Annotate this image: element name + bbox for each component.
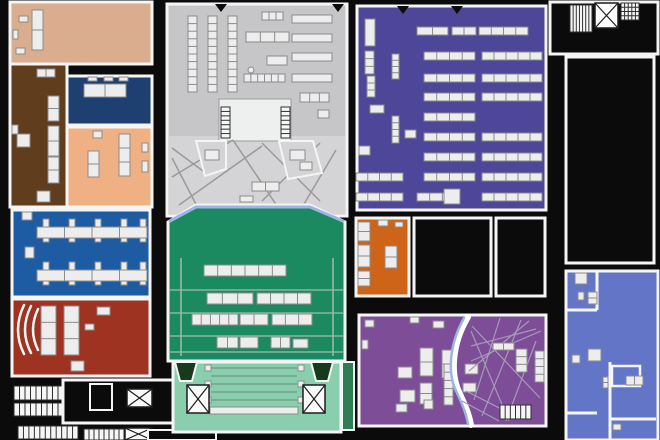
green-table-row-2b — [257, 293, 311, 304]
platform-right-table — [290, 150, 305, 160]
studio-item-2 — [362, 340, 368, 349]
tan-shelf — [32, 10, 43, 50]
purple-strip-2 — [392, 116, 399, 143]
brown-item-2 — [37, 191, 50, 202]
gray-table-row-1 — [292, 15, 332, 23]
purple-row-8a — [356, 193, 403, 201]
purple-row-1b — [482, 52, 542, 60]
red-item-2 — [85, 324, 94, 330]
gray-table-col-2 — [208, 16, 217, 92]
stage-cart-2 — [240, 196, 253, 202]
peach-shelf-2 — [119, 134, 130, 176]
elevator-left — [127, 389, 152, 407]
purple-shelf-2 — [365, 51, 374, 74]
brown-item-1 — [12, 125, 18, 134]
room-dark-b — [496, 218, 545, 296]
stage-lift-left — [187, 385, 209, 413]
stage-cart-1 — [252, 182, 279, 191]
orange-shelf-3 — [358, 271, 370, 286]
floor-plan-svg — [0, 0, 660, 440]
gray-table-row-4 — [292, 74, 332, 82]
room-dark-right — [566, 57, 654, 263]
pit-step-dot — [205, 365, 211, 371]
peach-item-3 — [142, 161, 148, 172]
stage-gallery-right — [281, 107, 290, 138]
purple-row-3b — [482, 93, 542, 101]
navy-tick-3 — [119, 77, 128, 81]
purple-row-0c — [479, 27, 528, 35]
purple-row-5a — [424, 133, 475, 141]
studio-table-1 — [420, 348, 433, 376]
studio-item-8 — [424, 400, 433, 409]
green-table-row-4b — [240, 337, 258, 348]
purple-row-8c — [482, 193, 542, 201]
pit-step-dot — [298, 365, 304, 371]
peach-shelf-1 — [88, 151, 99, 177]
studio-ramp — [500, 405, 531, 419]
purple-row-0a — [417, 27, 448, 35]
navy-tick-2 — [104, 77, 113, 81]
green-table-row-2a — [207, 293, 253, 304]
studio-item-1 — [365, 320, 374, 327]
purple-shelf-4 — [370, 105, 384, 113]
purple-row-1a — [424, 52, 475, 60]
green-table-row-4a — [217, 337, 238, 348]
gray-table-col-3 — [228, 16, 237, 92]
purple-row-3a — [424, 93, 475, 101]
suite-fixture-8 — [613, 424, 621, 430]
gray-dotted-row — [244, 74, 285, 82]
green-strip — [342, 362, 354, 430]
gray-table-row-2 — [292, 34, 332, 42]
gray-table-row-3 — [292, 53, 332, 61]
gray-dot — [248, 67, 254, 73]
stage-lift-right — [303, 385, 325, 413]
suite-fixture-2 — [575, 273, 587, 284]
tan-item-3 — [16, 48, 25, 54]
red-rows-2 — [64, 306, 79, 355]
red-item-1 — [97, 307, 110, 315]
stairwell-left-1 — [14, 386, 69, 400]
purple-row-2b — [482, 74, 542, 82]
purple-row-7a — [356, 173, 403, 181]
purple-shelf-1 — [365, 19, 375, 46]
brown-shelf-2 — [48, 126, 59, 156]
gray-bench-3 — [267, 56, 287, 65]
gray-bench-2 — [246, 32, 289, 42]
suite-fixture-1 — [626, 376, 643, 385]
purple-row-0b — [452, 27, 476, 35]
blue-item-1 — [22, 212, 32, 220]
studio-rack-3 — [535, 351, 544, 382]
suite-fixture-3 — [578, 292, 584, 300]
purple-row-6a — [424, 153, 475, 161]
red-rows-1 — [41, 306, 56, 355]
core-stairs — [570, 5, 592, 32]
studio-bench — [493, 343, 514, 350]
tan-item-2 — [13, 30, 18, 39]
red-item-3 — [71, 361, 84, 371]
platform-right-item — [300, 162, 312, 170]
corridor-branch — [90, 384, 112, 410]
stairwell-bottom-1 — [18, 426, 78, 439]
orange-shelf-2 — [358, 245, 370, 267]
core-grid — [621, 3, 639, 20]
orange-item-2 — [395, 222, 403, 227]
room-peach-lounge — [67, 127, 152, 207]
room-dark-a — [414, 218, 491, 296]
suite-fixture-4 — [588, 292, 597, 304]
orange-shelf-4 — [385, 246, 397, 268]
gray-table-col-1 — [188, 16, 197, 92]
suite-fixture-5 — [572, 355, 580, 363]
orange-shelf-1 — [358, 222, 370, 241]
green-table-row-3c — [272, 314, 312, 325]
stairwell-bottom-2 — [84, 429, 124, 440]
room-tan-lounge — [10, 2, 152, 64]
studio-item-5 — [396, 404, 407, 412]
platform-left-table — [205, 150, 219, 160]
room-navy-office — [67, 76, 152, 125]
brown-shelf-1 — [48, 96, 59, 121]
green-table-row-3b — [240, 314, 268, 325]
purple-strip-1 — [392, 54, 399, 79]
purple-row-5b — [482, 133, 542, 141]
blue-table-1 — [37, 227, 147, 238]
green-table-row-1 — [204, 265, 286, 276]
gray-bench-1 — [262, 12, 283, 20]
purple-row-6b — [482, 153, 542, 161]
brown-shelf-3 — [48, 157, 59, 183]
gray-bench-4 — [300, 93, 329, 102]
purple-row-2a — [424, 74, 475, 82]
green-table-row-3a — [192, 314, 238, 325]
purple-item-1 — [405, 130, 416, 138]
orange-item-1 — [378, 220, 388, 226]
floor-plan-canvas — [0, 0, 660, 440]
studio-item-4 — [400, 390, 415, 402]
brown-case — [17, 134, 30, 147]
green-table-row-4d — [293, 339, 308, 348]
blue-item-2 — [25, 247, 34, 258]
peach-item-2 — [142, 143, 148, 152]
peach-item-1 — [93, 131, 102, 138]
studio-item-3 — [398, 367, 412, 378]
tan-item-1 — [19, 16, 28, 22]
studio-item-6 — [433, 321, 444, 328]
brown-table — [37, 69, 55, 77]
stage-wedge-right — [311, 362, 333, 381]
suite-fixture-6 — [588, 349, 601, 361]
stairwell-left-2 — [14, 403, 69, 416]
purple-desk — [444, 189, 460, 204]
purple-shelf-3 — [367, 76, 375, 97]
stage-gallery-left — [221, 107, 230, 138]
gray-bench-5 — [318, 110, 329, 118]
core-elevator — [595, 3, 618, 28]
purple-item-2 — [359, 146, 370, 155]
blue-table-2 — [37, 270, 147, 281]
suite-fixture-7 — [603, 377, 608, 388]
stage-wedge-left — [175, 362, 197, 381]
navy-tick-1 — [88, 77, 97, 81]
studio-item-10 — [463, 383, 476, 392]
green-table-row-4c — [271, 337, 290, 348]
studio-rack-2 — [516, 349, 527, 372]
studio-item-7 — [410, 317, 419, 323]
purple-row-7b — [424, 173, 475, 181]
pit-front-bar — [210, 407, 298, 414]
purple-row-7c — [482, 173, 542, 181]
navy-sofa — [84, 84, 126, 97]
purple-row-4a — [424, 113, 475, 121]
